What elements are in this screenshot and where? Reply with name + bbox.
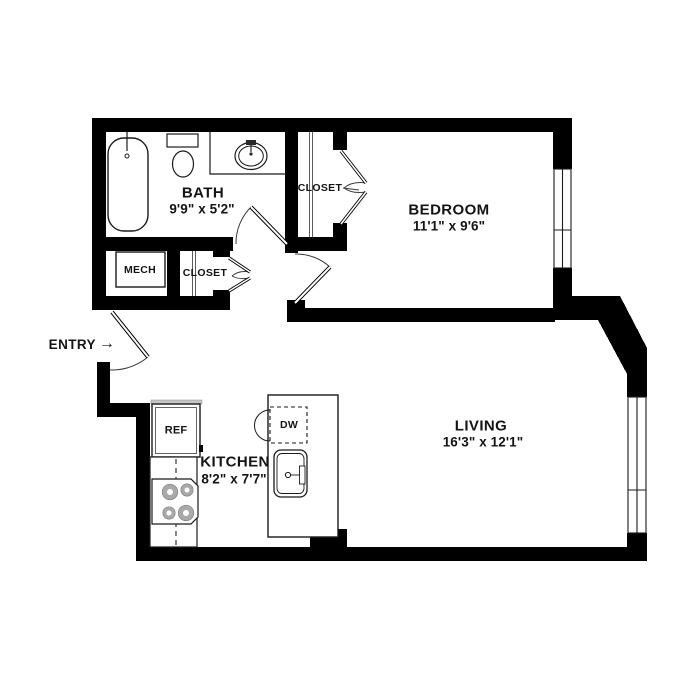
- floor-plan: BATH 9'9" x 5'2" CLOSET BEDROOM 11'1" x …: [0, 0, 697, 697]
- mech-room-label: MECH: [124, 265, 156, 276]
- kitchen-room-label: KITCHEN: [200, 455, 269, 470]
- bedroom-window: [554, 169, 571, 268]
- island-sink: [274, 450, 307, 497]
- entry-text: ENTRY: [49, 338, 96, 352]
- toilet: [167, 134, 198, 177]
- hall-closet-doors: [229, 258, 250, 291]
- kitchen-room-dims: 8'2" x 7'7": [201, 472, 266, 486]
- bath-vanity: [210, 132, 286, 174]
- bath-sink: [235, 140, 267, 170]
- entry-door: [110, 312, 148, 370]
- entry-arrow-icon: →: [99, 336, 115, 352]
- bedroom-room-dims: 11'1" x 9'6": [413, 219, 485, 233]
- bedroom-closet-doors: [341, 151, 366, 224]
- bedroom-closet-label: CLOSET: [298, 183, 342, 194]
- entry-label: ENTRY →: [49, 337, 116, 353]
- bath-room-dims: 9'9" x 5'2": [169, 202, 234, 216]
- living-window: [628, 397, 646, 533]
- bedroom-room-label: BEDROOM: [408, 203, 489, 218]
- living-room-dims: 16'3" x 12'1": [443, 435, 524, 449]
- refrigerator-label: REF: [165, 426, 188, 437]
- bedroom-door: [295, 254, 330, 303]
- hall-closet-label: CLOSET: [183, 268, 227, 279]
- stove: [152, 479, 198, 524]
- dishwasher-label: DW: [280, 420, 298, 431]
- bathtub: [108, 132, 148, 231]
- bath-door: [236, 207, 287, 244]
- bath-room-label: BATH: [182, 186, 224, 201]
- living-room-label: LIVING: [455, 419, 507, 434]
